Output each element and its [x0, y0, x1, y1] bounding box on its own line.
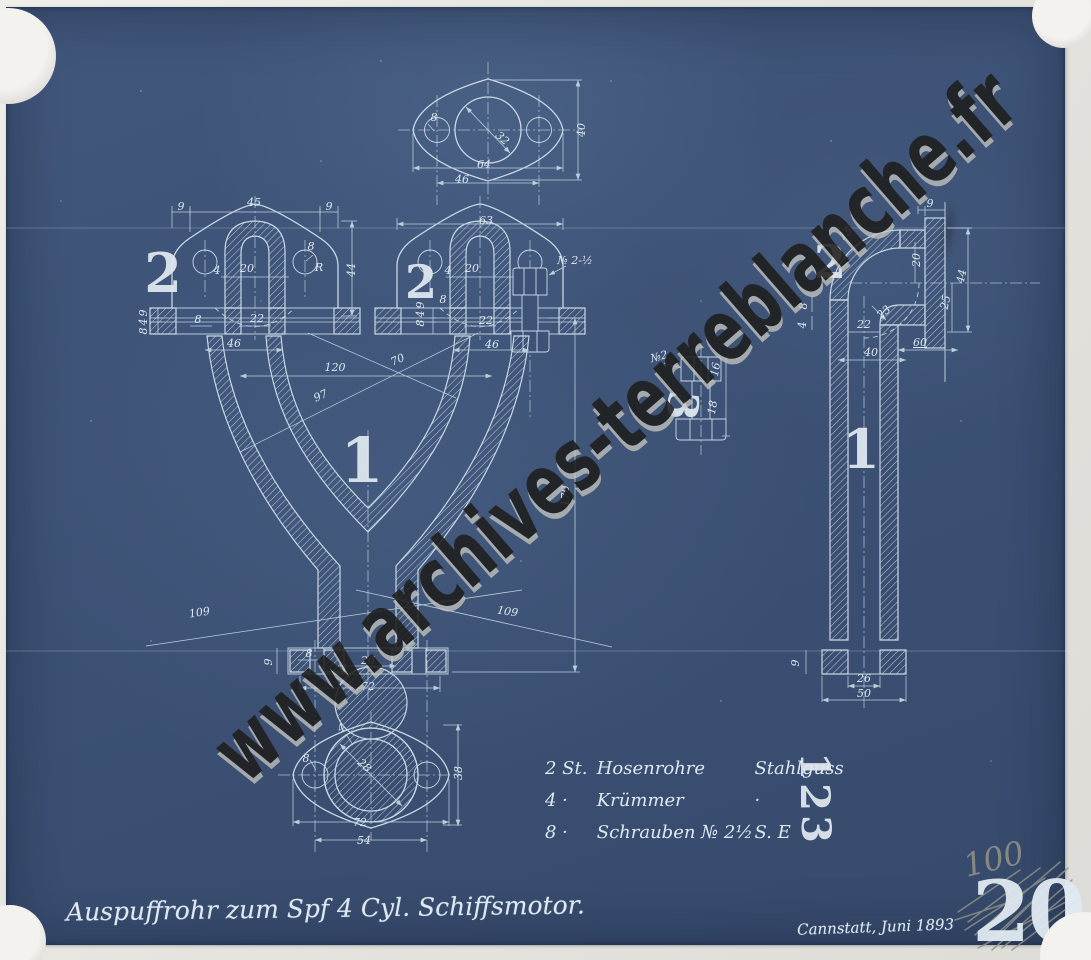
- dimension-label: 97: [312, 387, 330, 405]
- dimension-label: R: [314, 261, 323, 274]
- dimension-label: 8: [414, 320, 427, 327]
- dimension-label: 63: [479, 214, 493, 227]
- dimension-label: 60: [913, 336, 927, 349]
- dimension-label: 44: [345, 263, 358, 278]
- part-qty: 2 St.: [545, 758, 591, 779]
- part-material: ·: [754, 790, 760, 811]
- dimension-label: 4: [137, 319, 150, 327]
- dimension-label: 46: [484, 338, 499, 351]
- dimension-label: 22: [478, 314, 493, 327]
- side-flange: [925, 218, 945, 348]
- part-name: Schrauben № 2½: [597, 822, 749, 843]
- dimension-label: 4: [414, 311, 427, 319]
- blueprint-photo: 6446403289459444208R94882246634209488224…: [0, 0, 1091, 960]
- dimension-label: 8: [137, 328, 150, 335]
- dimension-label: 26: [856, 672, 871, 685]
- dimension-label: 120: [325, 361, 346, 374]
- dimension-label: 44: [954, 268, 970, 285]
- part-qty: 4 ·: [545, 790, 591, 811]
- part-qty: 8 ·: [545, 822, 591, 843]
- dimension-label: 20: [239, 262, 254, 275]
- dimension-label: 20: [910, 253, 923, 268]
- dimension-label: 32: [493, 129, 512, 148]
- part-stencil-number: 2: [405, 255, 437, 309]
- dimension-label: 46: [226, 337, 241, 350]
- dimension-label: 25: [938, 294, 954, 311]
- parts-row: 8 · Schrauben № 2½ S. E: [545, 822, 791, 843]
- part-stencil-number: 2: [791, 783, 838, 811]
- dimension-label: 109: [496, 603, 519, 619]
- dimension-label: 54: [357, 834, 371, 847]
- dimension-label: 72: [353, 816, 367, 829]
- dimension-label: 40: [863, 346, 878, 359]
- dimension-label: 20: [464, 262, 479, 275]
- pipe-wall-right: [880, 325, 898, 640]
- dimension-label: 64: [477, 158, 491, 171]
- part-stencil-number: 1: [340, 424, 383, 497]
- dimension-label: 45: [246, 196, 261, 209]
- dimension-label: № 2-½: [556, 254, 592, 267]
- dimension-label: 4: [213, 264, 221, 277]
- dimension-label: 46: [454, 173, 469, 186]
- dimension-label: 50: [857, 687, 871, 700]
- part-name: Krümmer: [597, 790, 749, 811]
- part-stencil-number: 2: [144, 241, 182, 305]
- part-name: Hosenrohre: [597, 758, 749, 779]
- dimension-label: 109: [188, 604, 211, 620]
- dimension-label: 40: [575, 123, 588, 138]
- dimension-label: 8: [440, 293, 447, 306]
- dimension-label: 8: [431, 111, 438, 124]
- dimension-label: 22: [249, 312, 264, 325]
- dimension-label: 9: [789, 660, 802, 667]
- dimension-label: 70: [389, 351, 407, 369]
- top-flange-view: [398, 62, 582, 205]
- dimension-label: 8: [308, 240, 315, 253]
- dimension-label: 9: [326, 200, 333, 213]
- part-stencil-number: 1: [842, 417, 880, 481]
- parts-row: 2 St. Hosenrohre Stahlguss: [545, 758, 844, 779]
- dimension-label: 9: [137, 310, 150, 317]
- part-material: Stahlguss: [754, 758, 843, 779]
- dimension-label: 38: [452, 766, 465, 780]
- dimension-label: 22: [856, 318, 871, 331]
- part-material: S. E: [754, 822, 790, 843]
- dimension-label: 8: [195, 313, 202, 326]
- part-stencil-number: 3: [792, 815, 839, 843]
- parts-row: 4 · Krümmer ·: [545, 790, 760, 811]
- dimension-label: 4: [444, 264, 452, 277]
- dimension-label: 9: [178, 200, 185, 213]
